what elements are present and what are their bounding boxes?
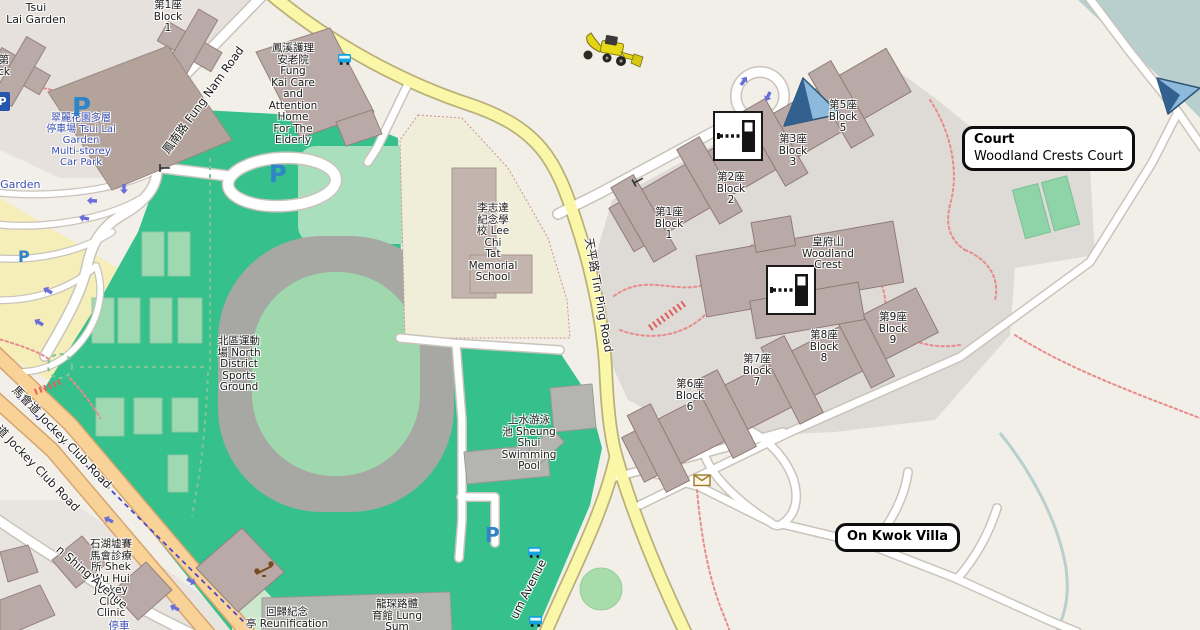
- label-fung-kai-home: 鳳溪護理安老院Fung Kai CareandAttention HomeFor…: [269, 43, 317, 147]
- green-circle: [580, 568, 622, 610]
- parking-p-icon: P: [72, 95, 91, 121]
- callout-subtitle: Woodland Crests Court: [974, 149, 1123, 166]
- label-sheung-shui-swimming-pool: 上水游泳池 SheungShui SwimmingPool: [502, 415, 557, 473]
- label-block-7: 第7座Block7: [743, 354, 771, 389]
- label-i-garden: i Garden: [0, 179, 40, 191]
- label-block-2: 第2座Block2: [717, 172, 745, 207]
- label-block-6: 第6座Block6: [676, 379, 704, 414]
- label-tsui-lai-block-1: 第1座Block1: [154, 0, 182, 35]
- label-north-district-sports-ground: 北區運動場 NorthDistrict SportsGround: [217, 336, 260, 394]
- label-blue-cut: 停車: [109, 621, 130, 630]
- parking-sign-icon: P: [0, 92, 10, 111]
- parking-p-icon: P: [269, 162, 287, 186]
- label-cut-block: 第ck: [0, 55, 10, 78]
- post-box-icon: [694, 475, 710, 486]
- track-infield: [252, 272, 420, 476]
- label-block-8: 第8座Block8: [810, 330, 838, 365]
- callout-title: Court: [974, 132, 1123, 149]
- callout-title: On Kwok Villa: [847, 529, 948, 546]
- map-canvas[interactable]: TsuiLai Garden 第1座Block1 第ck 翠麗花園多層停車場 T…: [0, 0, 1200, 630]
- label-woodland-crest: 皇府山WoodlandCrest: [802, 237, 854, 272]
- label-block-3: 第3座Block3: [779, 134, 807, 169]
- label-lung-sum-building: 龍琛路體育館 LungSum: [372, 599, 422, 630]
- label-block-5: 第5座Block5: [829, 100, 857, 135]
- callout-woodland-crests-court[interactable]: Court Woodland Crests Court: [962, 126, 1135, 171]
- label-reunification: 回歸紀念亭 Reunification: [246, 607, 328, 630]
- label-block-1: 第1座Block1: [655, 207, 683, 242]
- label-block-9: 第9座Block9: [879, 312, 907, 347]
- label-lee-chi-tat-school: 李志達紀念學校 Lee ChiTatMemorial School: [469, 203, 518, 284]
- parking-p-icon: P: [485, 525, 500, 545]
- callout-on-kwok-villa[interactable]: On Kwok Villa: [835, 523, 960, 552]
- parking-p-icon: P: [18, 249, 30, 265]
- label-tsui-lai-garden: TsuiLai Garden: [6, 2, 66, 25]
